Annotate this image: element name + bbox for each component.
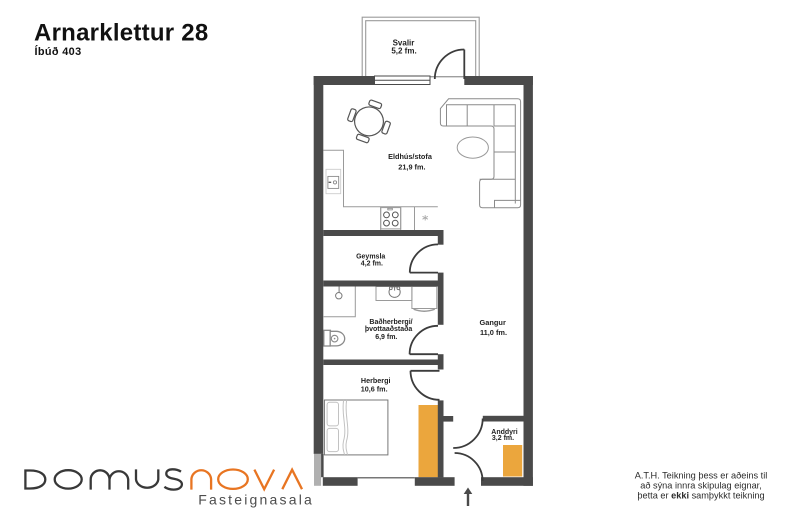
svg-text:3,2 fm.: 3,2 fm. — [492, 435, 514, 442]
svg-text:þvottaaðstaða: þvottaaðstaða — [365, 325, 413, 333]
svg-text:21,9 fm.: 21,9 fm. — [398, 162, 425, 171]
svg-text:Fasteignasala: Fasteignasala — [198, 492, 314, 508]
svg-text:6,9 fm.: 6,9 fm. — [375, 334, 397, 341]
svg-text:Baðherbergi/: Baðherbergi/ — [369, 318, 412, 326]
svg-text:4,2 fm.: 4,2 fm. — [361, 260, 383, 267]
svg-text:11,0 fm.: 11,0 fm. — [480, 328, 507, 337]
svg-text:10,6 fm.: 10,6 fm. — [361, 385, 388, 394]
svg-text:Eldhús/stofa: Eldhús/stofa — [388, 152, 433, 161]
svg-text:að sýna innra skipulag eignar,: að sýna innra skipulag eignar, — [640, 481, 762, 491]
svg-text:A.T.H. Teikning þess er aðeins: A.T.H. Teikning þess er aðeins til — [635, 471, 768, 481]
svg-text:5,2 fm.: 5,2 fm. — [391, 47, 416, 56]
svg-text:Gangur: Gangur — [480, 318, 506, 327]
svg-text:Íbúð 403: Íbúð 403 — [35, 45, 82, 58]
svg-text:Arnarklettur 28: Arnarklettur 28 — [34, 19, 208, 46]
svg-text:þetta er ekki samþykkt teiknin: þetta er ekki samþykkt teikning — [637, 491, 764, 501]
